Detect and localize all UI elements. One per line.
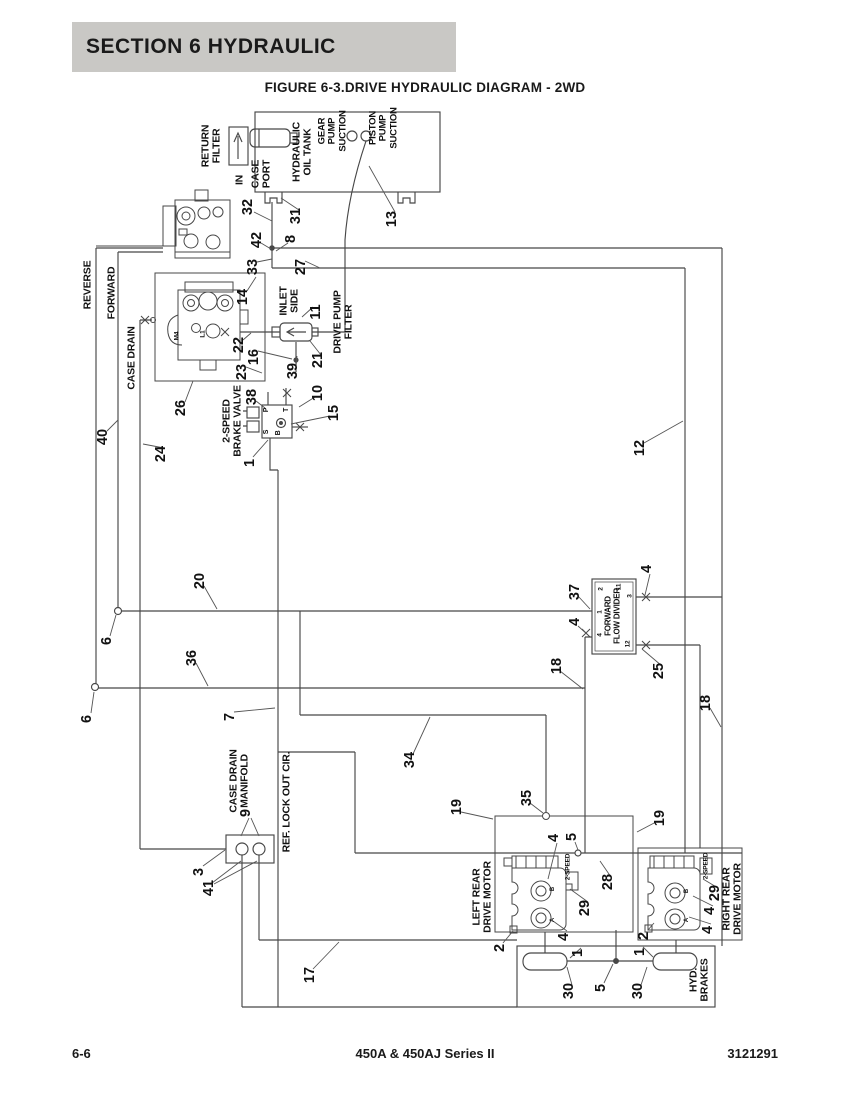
callout-number: 4: [702, 907, 718, 915]
callout-number: 37: [567, 584, 583, 600]
hydraulic-diagram: RETURN FILTERINCASE PORTHYDRAULIC OIL TA…: [0, 0, 850, 1100]
callout-number: 30: [561, 983, 577, 999]
diagram-label: DRIVE PUMP FILTER: [333, 290, 356, 353]
callout-number: 20: [192, 573, 208, 589]
callout-number: 9: [238, 809, 254, 817]
diagram-linework: [0, 0, 850, 1100]
callout-number: 35: [519, 790, 535, 806]
callout-number: 31: [288, 208, 304, 224]
diagram-label: REF. LOCK OUT CIR.: [281, 752, 292, 853]
callout-number: 21: [310, 352, 326, 368]
line-fittings: [92, 608, 582, 857]
diagram-label: 2-SPEED BRAKE VALVE: [222, 385, 245, 457]
callout-number: 10: [310, 385, 326, 401]
callout-number: 15: [326, 405, 342, 421]
callout-number: 11: [308, 304, 324, 319]
diagram-label: LEFT REAR DRIVE MOTOR: [472, 861, 495, 933]
diagram-label: HYDRAULIC OIL TANK: [292, 122, 315, 182]
diagram-label: B: [275, 431, 283, 436]
page-footer: 6-6 450A & 450AJ Series II 3121291: [0, 1046, 850, 1066]
diagram-label: L1: [199, 330, 206, 337]
footer-doc-number: 3121291: [727, 1046, 778, 1061]
callout-number: 24: [153, 446, 169, 462]
diagram-label: T: [283, 408, 291, 412]
callout-number: 19: [449, 799, 465, 815]
callout-number: 38: [244, 389, 260, 405]
diagram-label: B: [550, 887, 556, 891]
callout-number: 7: [222, 713, 238, 721]
callout-number: 4: [567, 618, 583, 626]
callout-number: 32: [240, 199, 256, 215]
diagram-label: 12: [624, 641, 631, 648]
diagram-label: 3: [626, 594, 633, 597]
callout-number: 27: [293, 259, 309, 275]
diagram-label: RIGHT REAR DRIVE MOTOR: [722, 863, 745, 935]
diagram-label: REVERSE: [82, 261, 93, 310]
callout-number: 2: [492, 944, 508, 952]
diagram-label: GEAR PUMP SUCTION: [318, 110, 349, 151]
diagram-label: 2-SPEED: [564, 854, 571, 880]
callout-number: 39: [285, 363, 301, 379]
callout-number: 1: [570, 949, 586, 957]
callout-number: 23: [234, 364, 250, 380]
diagram-label: HYD. BRAKES: [689, 958, 712, 1001]
diagram-label: CASE PORT: [251, 160, 274, 188]
callout-number: 13: [384, 211, 400, 227]
diagram-label: A: [550, 918, 556, 922]
diagram-label: S: [263, 430, 271, 434]
diagram-label: INLET SIDE: [279, 286, 302, 315]
callout-number: 26: [173, 400, 189, 416]
callout-number: 1: [632, 948, 648, 956]
diagram-label: 11: [615, 584, 622, 590]
callout-number: 4: [700, 926, 716, 934]
callout-number: 5: [564, 833, 580, 841]
diagram-label: FORWARD: [106, 267, 117, 320]
callout-number: 36: [184, 650, 200, 666]
callout-number: 14: [235, 289, 251, 305]
callout-number: 6: [99, 637, 115, 645]
callout-number: 41: [201, 880, 217, 896]
callout-number: 4: [556, 933, 572, 941]
callout-number: 40: [95, 429, 111, 445]
diagram-label: B: [684, 889, 690, 893]
callout-number: 3: [191, 868, 207, 876]
case-drain-manifold: [226, 835, 274, 863]
diagram-label: 4: [596, 633, 603, 636]
diagram-label: CASE DRAIN: [126, 326, 137, 389]
diagram-label: P: [263, 408, 271, 412]
callout-number: 33: [245, 259, 261, 275]
callout-number: 22: [231, 337, 247, 353]
callout-number: 42: [249, 232, 265, 248]
diagram-label: 1: [596, 610, 603, 613]
callout-number: 5: [593, 984, 609, 992]
diagram-label: 2: [597, 587, 604, 590]
callout-number: 29: [577, 900, 593, 916]
diagram-label: IN: [234, 175, 245, 185]
callout-number: 18: [549, 658, 565, 674]
diagram-label: 2-SPEED: [702, 853, 709, 879]
callout-number: 30: [630, 983, 646, 999]
diagram-label: PISTON PUMP SUCTION: [369, 107, 400, 148]
callout-number: 19: [652, 810, 668, 826]
callout-number: 17: [302, 967, 318, 983]
footer-model: 450A & 450AJ Series II: [0, 1046, 850, 1061]
diagram-label: M4: [173, 332, 180, 341]
diagram-label: CASE DRAIN MANIFOLD: [229, 749, 252, 812]
callout-number: 34: [402, 752, 418, 768]
callout-number: 1: [242, 459, 258, 467]
callout-number: 6: [79, 715, 95, 723]
callout-number: 18: [698, 695, 714, 711]
callout-number: 4: [639, 565, 655, 573]
callout-number: 28: [600, 874, 616, 890]
callout-number: 4: [546, 834, 562, 842]
callout-number: 25: [651, 663, 667, 679]
diagram-label: A: [684, 918, 690, 922]
callout-number: 12: [632, 440, 648, 456]
callout-number: 29: [707, 885, 723, 901]
callout-number: 8: [283, 235, 299, 243]
callout-number: 2: [636, 932, 652, 940]
callout-number: 16: [246, 349, 262, 365]
diagram-label: FORWARD FLOW DIVIDER: [604, 588, 621, 644]
diagram-label: RETURN FILTER: [201, 125, 224, 168]
